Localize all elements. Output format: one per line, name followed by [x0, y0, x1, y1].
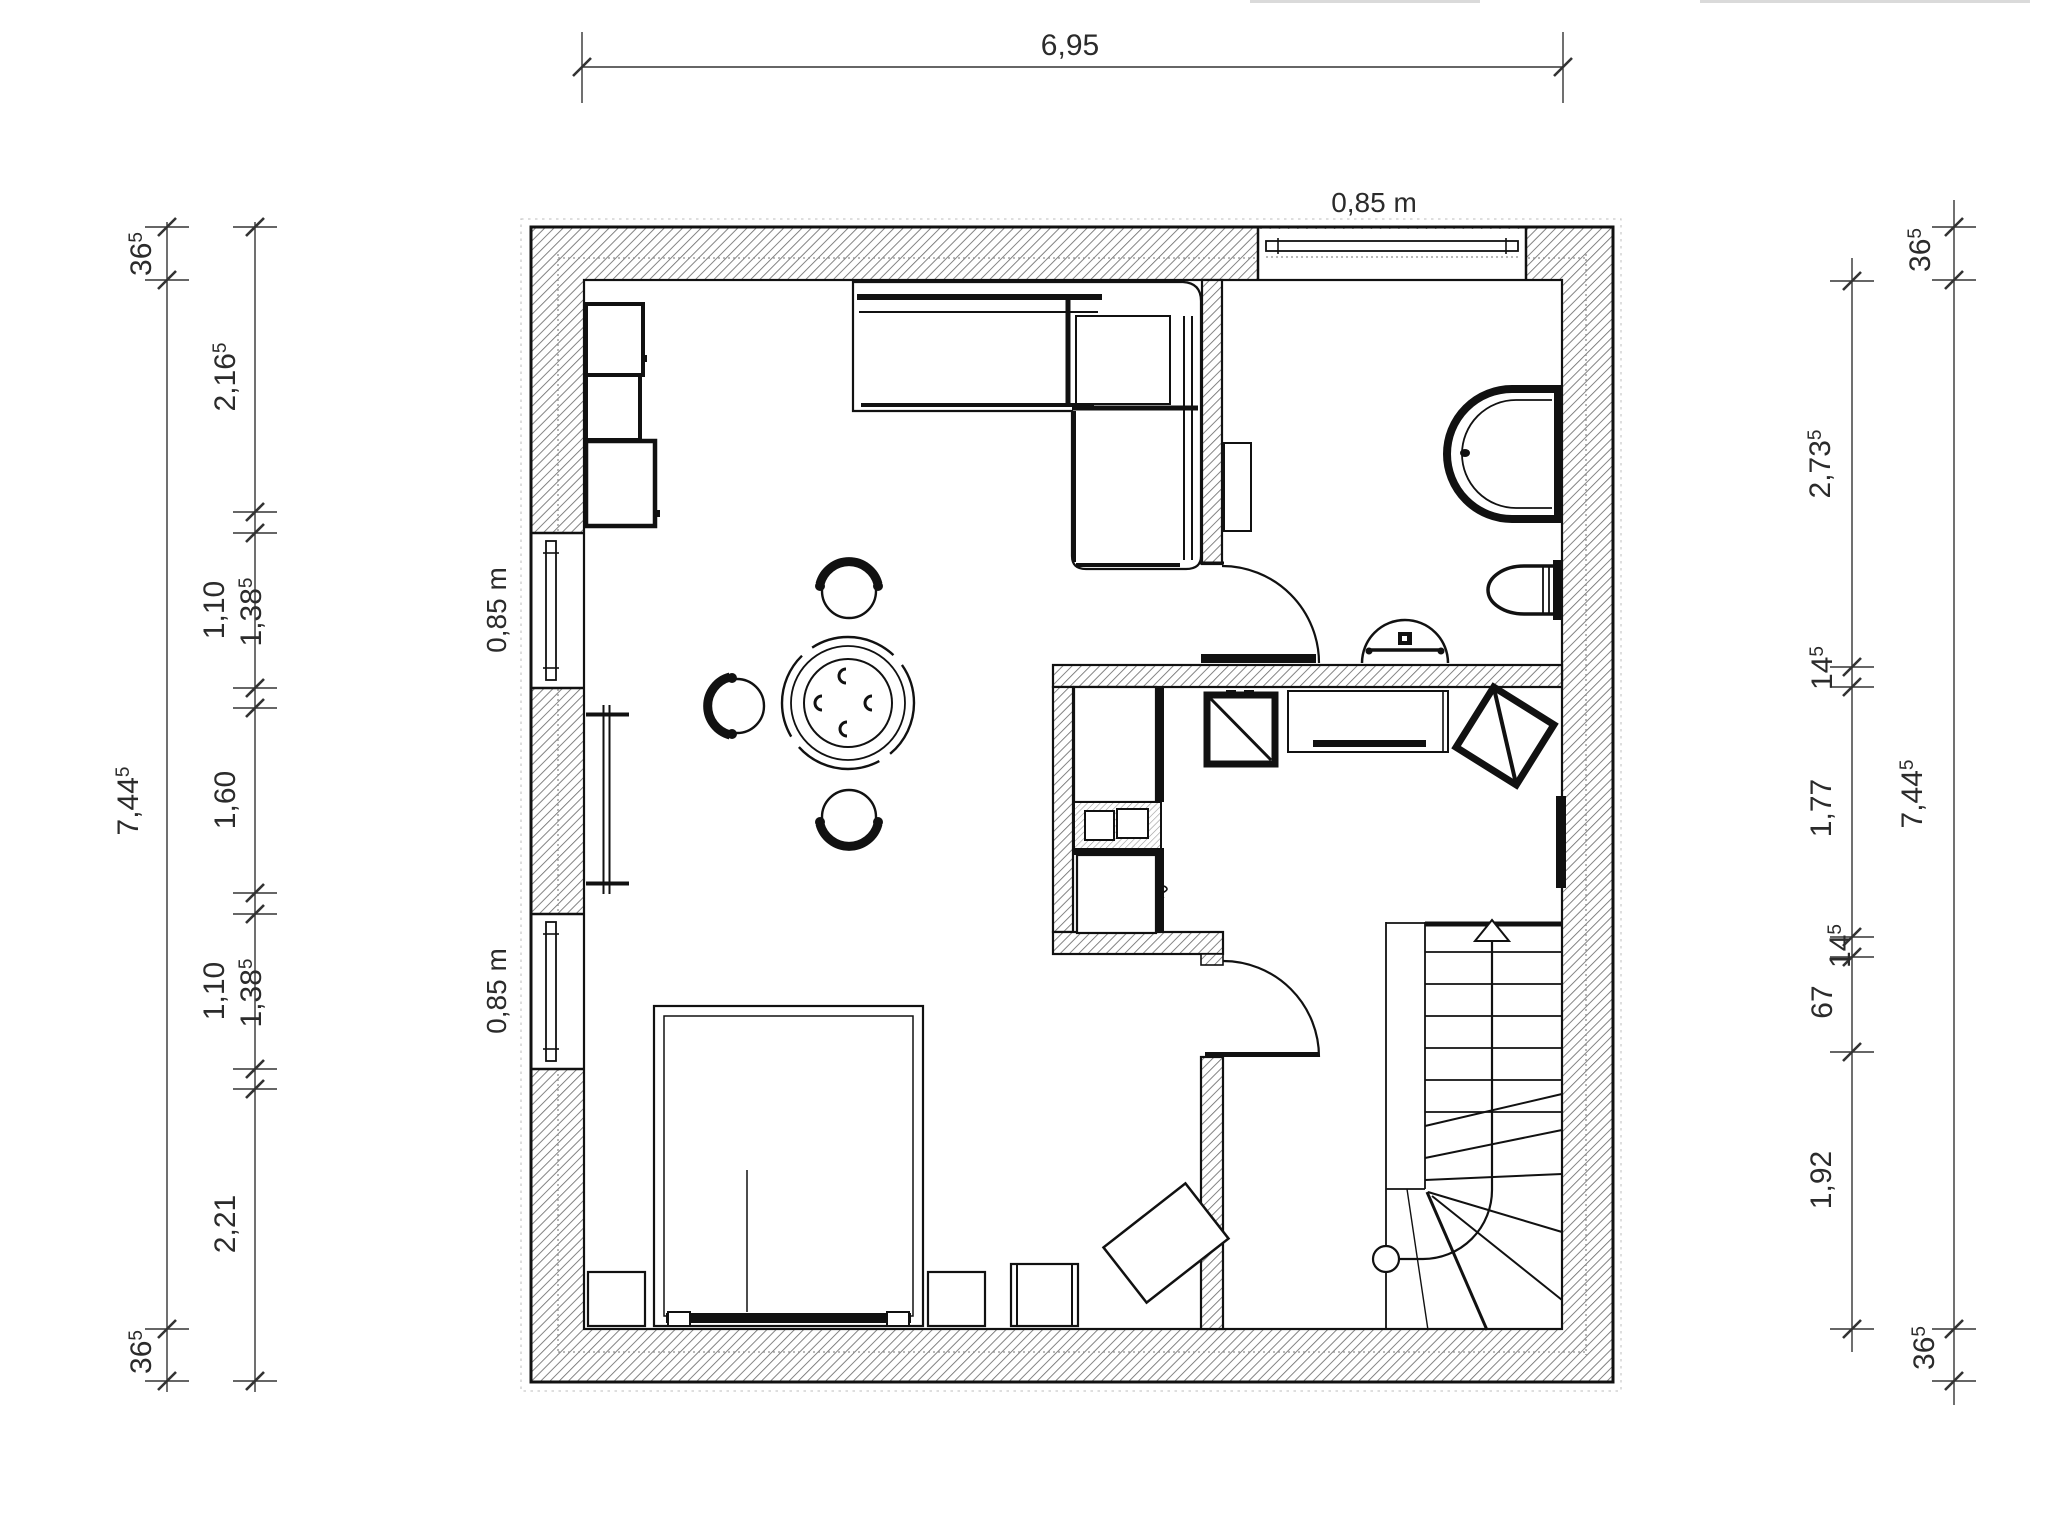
svg-text:6,95: 6,95	[1041, 29, 1099, 62]
svg-text:1,92: 1,92	[1805, 1151, 1838, 1209]
svg-text:365: 365	[125, 232, 158, 276]
svg-text:7,445: 7,445	[112, 767, 145, 836]
svg-text:365: 365	[1904, 228, 1937, 272]
svg-text:67: 67	[1806, 985, 1839, 1018]
svg-text:1,10: 1,10	[198, 581, 231, 639]
svg-text:1,60: 1,60	[209, 771, 242, 829]
svg-text:1,385: 1,385	[235, 959, 268, 1028]
svg-text:1,10: 1,10	[198, 962, 231, 1020]
svg-text:365: 365	[1908, 1326, 1941, 1370]
svg-text:2,21: 2,21	[209, 1195, 242, 1253]
svg-text:2,165: 2,165	[209, 343, 242, 412]
svg-text:2,735: 2,735	[1804, 430, 1837, 499]
svg-text:0,85 m: 0,85 m	[481, 567, 512, 653]
svg-text:1,77: 1,77	[1805, 779, 1838, 837]
svg-text:1,385: 1,385	[235, 578, 268, 647]
svg-text:0,85 m: 0,85 m	[481, 948, 512, 1034]
svg-text:145: 145	[1806, 646, 1839, 690]
svg-text:7,445: 7,445	[1896, 760, 1929, 829]
svg-text:0,85 m: 0,85 m	[1331, 187, 1417, 218]
svg-text:365: 365	[125, 1330, 158, 1374]
